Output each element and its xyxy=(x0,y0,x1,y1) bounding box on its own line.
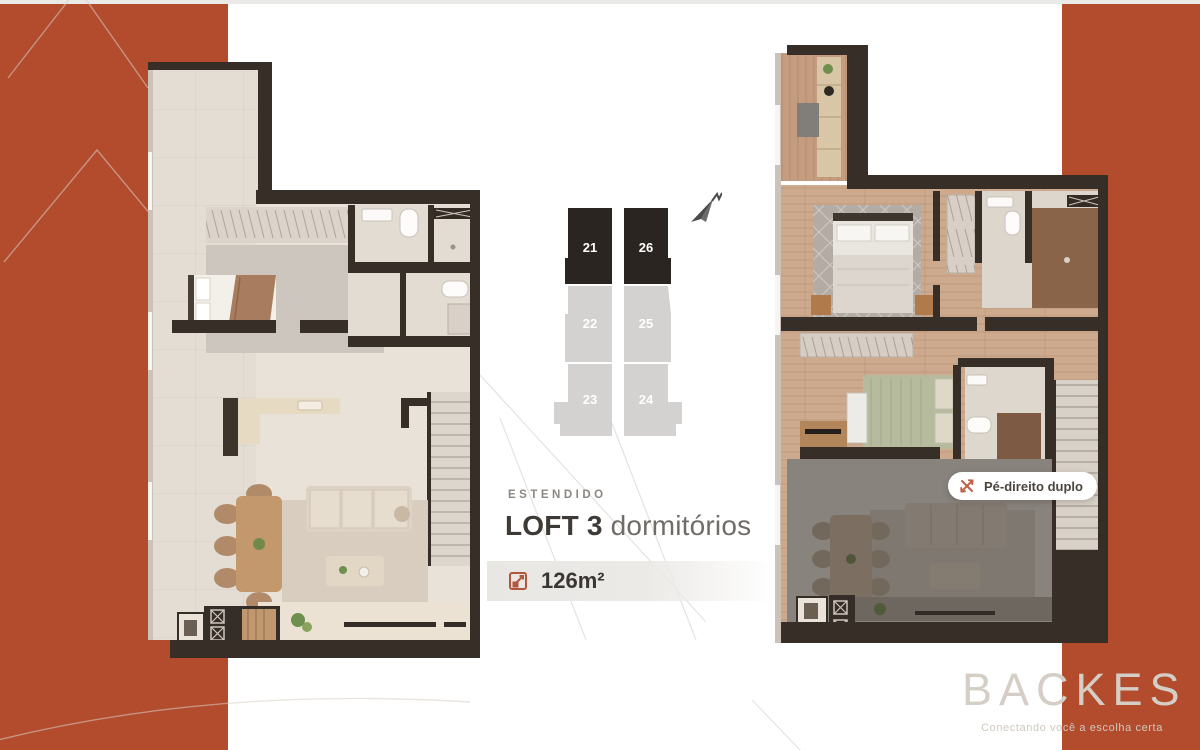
svg-text:25: 25 xyxy=(639,316,653,331)
top-strip xyxy=(0,0,1200,4)
stack-unit-26[interactable]: 26 xyxy=(624,208,671,284)
wall xyxy=(777,317,977,331)
area-band: 126m² xyxy=(487,561,777,601)
svg-text:21: 21 xyxy=(583,240,597,255)
floor-plan-lower-level xyxy=(148,62,480,658)
hall-closet xyxy=(947,195,975,273)
north-arrow-icon xyxy=(686,192,722,228)
plan-title-strong: LOFT 3 xyxy=(505,510,603,541)
plan-title: LOFT 3 dormitórios xyxy=(505,510,751,542)
bathroom-1 xyxy=(975,191,1101,308)
stack-unit-24[interactable]: 24 xyxy=(624,364,682,436)
living-room xyxy=(282,486,428,602)
area-value: 126m² xyxy=(541,568,605,594)
bottom-terrace xyxy=(258,602,472,640)
svg-text:22: 22 xyxy=(583,316,597,331)
stack-unit-21[interactable]: 21 xyxy=(565,208,612,284)
wall xyxy=(172,320,276,333)
brand-tagline: Conectando você a escolha certa xyxy=(962,722,1182,734)
floor-plan-upper-level xyxy=(775,45,1115,660)
unit-stack-diagram: 21 22 23 26 25 24 xyxy=(552,196,722,441)
side-table xyxy=(394,506,410,522)
wall xyxy=(985,317,1098,331)
left-wall-windows xyxy=(775,53,781,643)
brochure-page: 21 22 23 26 25 24 ESTENDIDO LOFT 3 xyxy=(0,0,1200,750)
badge-label: Pé-direito duplo xyxy=(984,479,1083,494)
coffee-table xyxy=(326,556,384,586)
plan-title-light: dormitórios xyxy=(603,510,752,541)
stack-unit-23[interactable]: 23 xyxy=(554,364,612,436)
stack-unit-25[interactable]: 25 xyxy=(624,286,671,362)
area-expand-icon xyxy=(507,570,529,592)
double-height-icon xyxy=(958,477,976,495)
upper-corridor xyxy=(781,53,847,181)
svg-text:24: 24 xyxy=(639,392,654,407)
svg-text:26: 26 xyxy=(639,240,653,255)
plan-variant-tag: ESTENDIDO xyxy=(508,489,607,501)
bedroom-1 xyxy=(811,191,940,317)
stack-unit-22[interactable]: 22 xyxy=(565,286,612,362)
brand-logo: BACKES xyxy=(962,664,1182,716)
bathrooms xyxy=(348,205,474,347)
svg-text:23: 23 xyxy=(583,392,597,407)
double-height-badge: Pé-direito duplo xyxy=(948,472,1097,500)
